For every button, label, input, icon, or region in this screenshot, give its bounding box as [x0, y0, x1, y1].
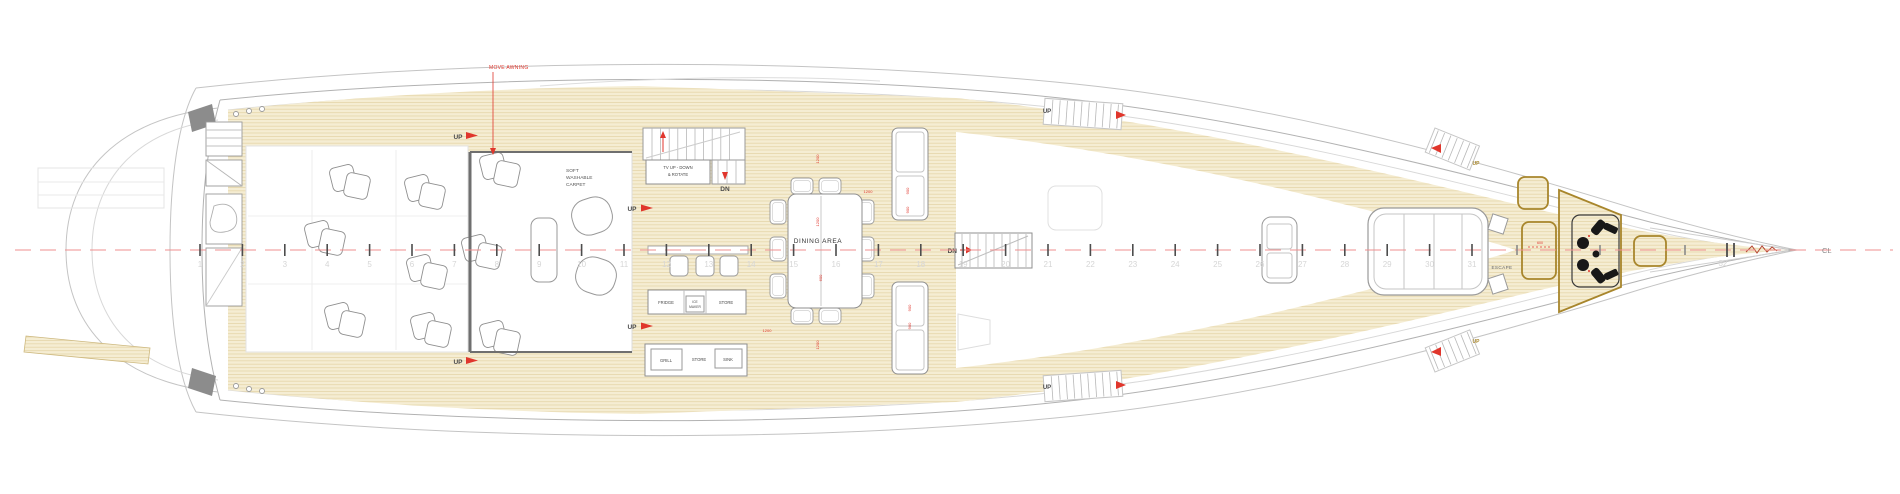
station-tick — [920, 244, 922, 256]
wheelhouse-skylight — [1368, 208, 1488, 295]
dim-label: 1200 — [864, 189, 874, 194]
transom-stairs — [206, 122, 242, 156]
station-tick — [1090, 244, 1092, 256]
station-tick — [1386, 244, 1388, 256]
station-tick — [1259, 244, 1261, 256]
station-tick — [1344, 244, 1346, 256]
sink-label: SINK — [723, 357, 733, 362]
bar-stool — [670, 256, 688, 276]
station-number: 31 — [1468, 260, 1477, 269]
station-tick — [1047, 244, 1049, 256]
dim-label: 900 — [905, 187, 910, 194]
dn-label: DN — [720, 186, 730, 193]
deck-lounger — [338, 310, 366, 338]
sidedeck-stair-band — [1043, 370, 1123, 401]
grill-label: GRILL — [660, 358, 673, 363]
station-tick — [284, 244, 286, 256]
escape-label: ESCAPE — [1491, 265, 1512, 270]
station-tick — [835, 244, 837, 256]
station-number: 26 — [1256, 260, 1265, 269]
station-tick — [1217, 244, 1219, 256]
station-tick — [1516, 245, 1518, 255]
station-tick — [623, 244, 625, 256]
saloon-note-line2: WASHABLE — [566, 175, 592, 181]
station-tick — [962, 244, 964, 256]
station-tick — [666, 244, 668, 256]
perpendicular-tick — [1726, 243, 1728, 257]
deck-lounger — [493, 160, 521, 188]
dining-table — [788, 194, 862, 308]
dim-label: 900 — [905, 206, 910, 213]
station-number: 25 — [1213, 260, 1222, 269]
station-tick — [581, 244, 583, 256]
bow-dim-label: 600 — [1537, 241, 1543, 245]
station-tick — [708, 244, 710, 256]
up-label: UP — [627, 324, 637, 331]
dim-label: 600 — [818, 274, 823, 281]
station-tick — [454, 244, 456, 256]
station-number: 16 — [832, 260, 841, 269]
dim-label: 1200 — [815, 154, 820, 164]
station-tick — [1684, 245, 1686, 255]
bow-seat — [1518, 177, 1548, 209]
deck-lounger — [420, 262, 448, 290]
red-mark — [1588, 270, 1590, 272]
stairs-saloon: TV UP - DOWN & ROTATE DN — [643, 128, 745, 193]
station-number: 8 — [495, 260, 500, 269]
deck-locker-faint — [958, 314, 990, 350]
cleat — [247, 387, 252, 392]
station-tick — [1599, 245, 1601, 255]
dim-label: 1200 — [763, 328, 773, 333]
dining-area-label: DINING AREA — [794, 238, 843, 245]
cl-label: CL — [1822, 246, 1832, 255]
cleat — [234, 112, 239, 117]
tv-note-line2: & ROTATE — [668, 172, 689, 177]
station-number: 14 — [747, 260, 756, 269]
ice-label: ICE — [692, 300, 698, 304]
store-label: STORE — [719, 300, 734, 305]
bar-stool — [720, 256, 738, 276]
station-number: 4 — [325, 260, 330, 269]
deck-lounger — [418, 182, 446, 210]
station-number: 20 — [1001, 260, 1010, 269]
station-tick — [1429, 244, 1431, 256]
cleat — [234, 384, 239, 389]
station-tick — [793, 244, 795, 256]
up-label: UP — [1043, 385, 1051, 391]
cleat — [260, 107, 265, 112]
up-label: UP — [453, 134, 463, 141]
station-number: 17 — [874, 260, 883, 269]
saloon-note-line3: CARPET — [566, 182, 586, 188]
store2-label: STORE — [692, 357, 707, 362]
station-number: 29 — [1383, 260, 1392, 269]
up-label-gold: UP — [1473, 161, 1481, 167]
companionway: DN — [948, 186, 1102, 350]
station-tick — [750, 244, 752, 256]
fridge-label: FRIDGE — [658, 300, 674, 305]
station-tick — [369, 244, 371, 256]
station-number: 23 — [1128, 260, 1137, 269]
station-tick — [242, 244, 244, 256]
station-tick — [1005, 244, 1007, 256]
tv-note-line1: TV UP - DOWN — [663, 165, 692, 170]
station-number: 10 — [577, 260, 586, 269]
up-label: UP — [1043, 109, 1051, 115]
deck-lounger — [318, 228, 346, 256]
transom-locker-dark — [188, 368, 216, 396]
station-number: 7 — [452, 260, 457, 269]
dim-label: 900 — [907, 322, 912, 329]
station-tick — [199, 244, 201, 256]
station-tick — [496, 244, 498, 256]
station-tick — [1132, 244, 1134, 256]
station-tick — [411, 244, 413, 256]
stair-landing — [712, 160, 745, 184]
dn-label: DN — [948, 248, 958, 255]
deck-lounger — [424, 320, 452, 348]
station-number: 28 — [1340, 260, 1349, 269]
dim-label: 1200 — [815, 340, 820, 350]
cabinet-forward-top — [892, 128, 928, 220]
dim-label: 1200 — [815, 217, 820, 227]
station-number: 22 — [1086, 260, 1095, 269]
station-number: 15 — [789, 260, 798, 269]
cleat — [247, 109, 252, 114]
chain-stopper — [1593, 251, 1600, 258]
yacht-deck-plan: SOFT WASHABLE CARPET TV UP - DOWN & ROTA… — [0, 0, 1900, 489]
up-label: UP — [627, 206, 637, 213]
station-number: 32 — [1719, 259, 1728, 268]
dim-label: 900 — [907, 304, 912, 311]
station-number: 18 — [916, 260, 925, 269]
sidedeck-stair-band — [1043, 98, 1123, 129]
station-number: 3 — [283, 260, 288, 269]
station-tick — [1302, 244, 1304, 256]
station-number: 27 — [1298, 260, 1307, 269]
station-number: 21 — [1044, 260, 1053, 269]
station-number: 2 — [240, 260, 245, 269]
station-number: 6 — [410, 260, 415, 269]
station-tick — [1174, 244, 1176, 256]
platform-step — [38, 168, 164, 208]
bow-hatch — [1634, 236, 1666, 266]
station-tick — [326, 244, 328, 256]
ice-maker-box — [686, 296, 704, 312]
saloon-note-line1: SOFT — [566, 168, 579, 174]
up-label-gold: UP — [1473, 339, 1481, 345]
station-tick — [538, 244, 540, 256]
windlass-drum — [1577, 259, 1589, 271]
station-number: 24 — [1171, 260, 1180, 269]
red-mark — [1588, 235, 1590, 237]
station-tick — [878, 244, 880, 256]
perpendicular-tick — [1733, 243, 1735, 257]
station-tick — [1471, 244, 1473, 256]
station-number: 11 — [620, 260, 629, 269]
station-number: 13 — [704, 260, 713, 269]
transom-seat — [210, 204, 237, 232]
station-number: 5 — [367, 260, 372, 269]
anchor-gear-platform — [1559, 190, 1621, 312]
windlass-drum — [1577, 237, 1589, 249]
cleat — [260, 389, 265, 394]
up-label: UP — [453, 359, 463, 366]
station-number: 12 — [662, 260, 671, 269]
deck-lounger — [343, 172, 371, 200]
station-number: 1 — [198, 260, 203, 269]
awning-note: MOVE AWNING — [489, 65, 529, 71]
skylight-faint — [1048, 186, 1102, 230]
station-number: 9 — [537, 260, 542, 269]
gangway-plank — [24, 336, 150, 364]
station-number: 30 — [1425, 260, 1434, 269]
station-number: 19 — [959, 260, 968, 269]
maker-label: MAKER — [689, 305, 701, 309]
